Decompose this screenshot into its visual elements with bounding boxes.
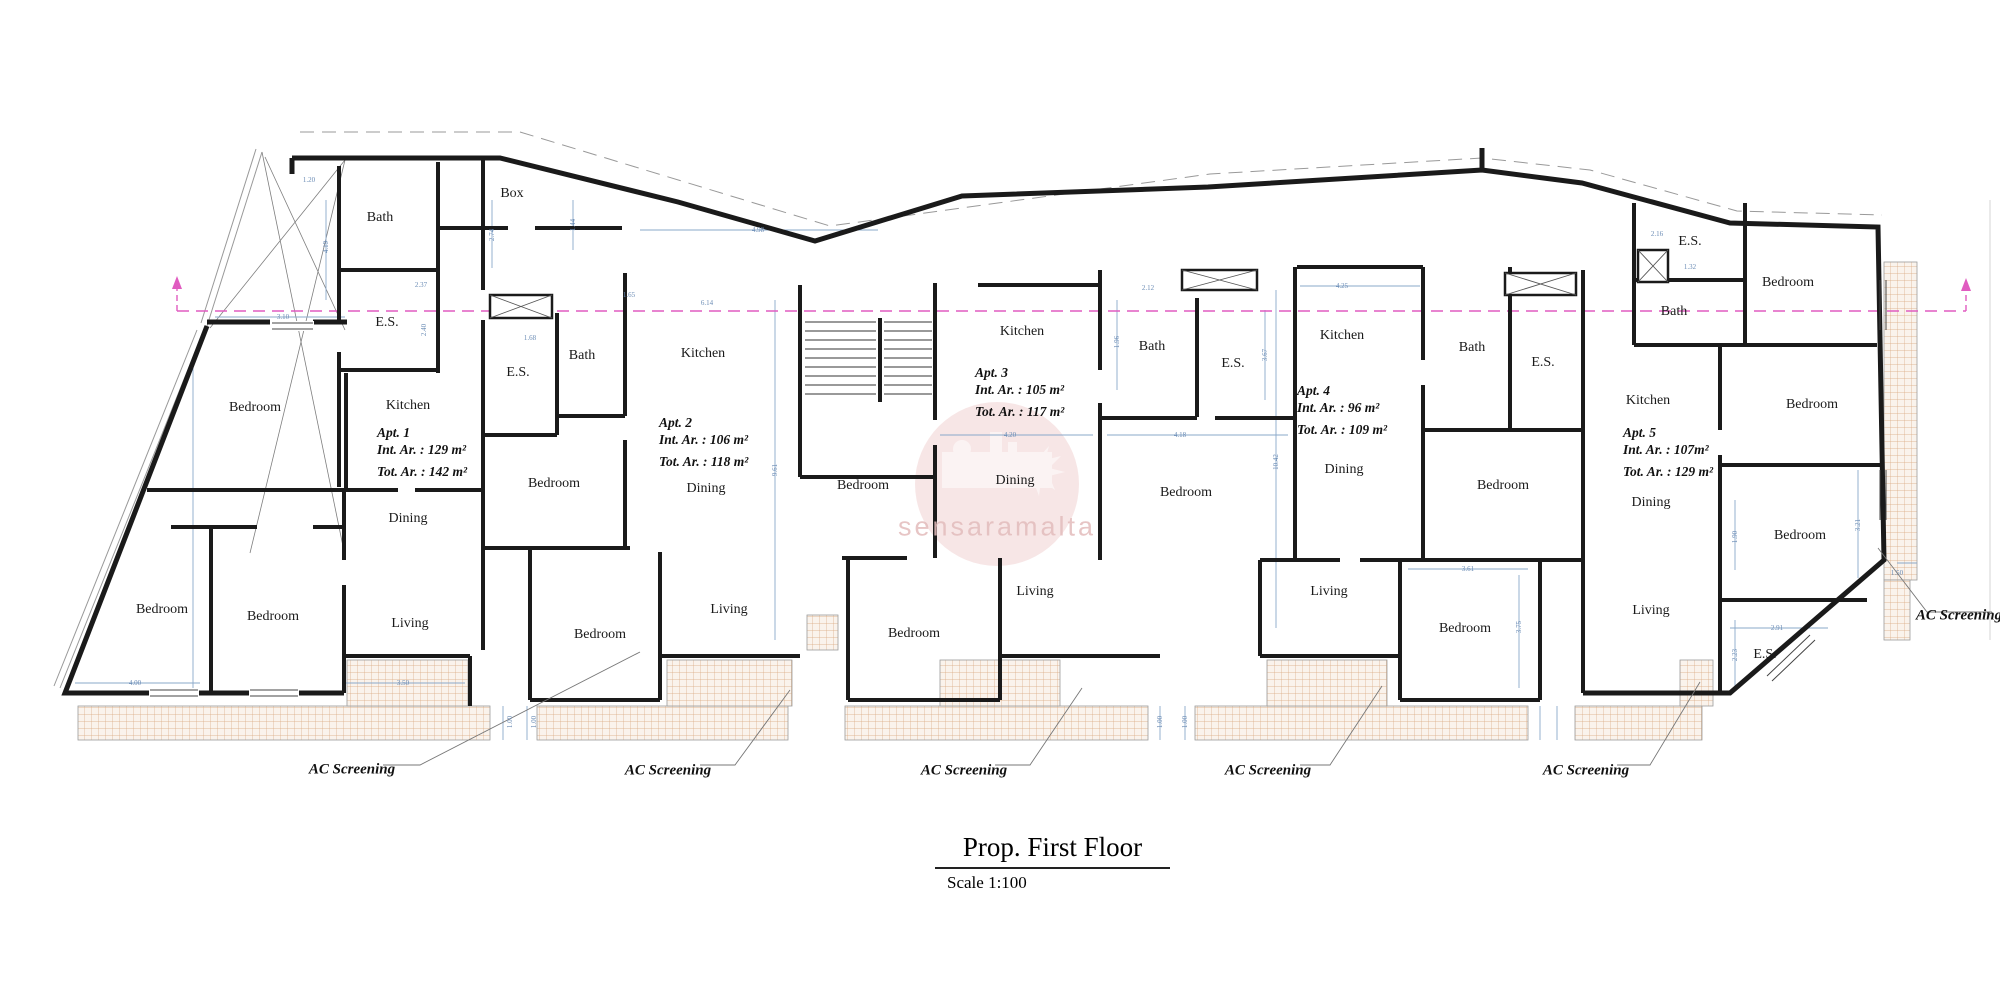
ac-screening-label: AC Screening bbox=[921, 763, 1007, 780]
room-label: Bedroom bbox=[888, 626, 940, 642]
apartment-int-area: Int. Ar. : 96 m² bbox=[1297, 399, 1387, 416]
ac-screening-label: AC Screening bbox=[625, 763, 711, 780]
dimension-label: 2.40 bbox=[420, 324, 428, 336]
room-label: E.S. bbox=[375, 315, 398, 331]
dimension-label: 3.67 bbox=[1261, 349, 1269, 361]
dimension-label: 2.37 bbox=[415, 281, 427, 289]
apartment-name: Apt. 2 bbox=[659, 414, 748, 431]
title-block: Prop. First Floor Scale 1:100 bbox=[935, 832, 1170, 893]
room-label: Kitchen bbox=[1000, 324, 1044, 340]
dimension-label: 1.00 bbox=[1156, 716, 1164, 728]
dimension-label: 4.00 bbox=[129, 679, 141, 687]
dimension-label: 4.18 bbox=[1174, 431, 1186, 439]
dimension-label: 2.91 bbox=[1771, 624, 1783, 632]
dimension-label: 1.00 bbox=[530, 716, 538, 728]
room-label: E.S. bbox=[1531, 355, 1554, 371]
dimension-label: 1.00 bbox=[1181, 716, 1189, 728]
apartment-name: Apt. 3 bbox=[975, 364, 1064, 381]
room-label: E.S. bbox=[1678, 234, 1701, 250]
ac-screening-label: AC Screening bbox=[1916, 608, 2000, 625]
apartment-int-area: Int. Ar. : 107m² bbox=[1623, 441, 1713, 458]
room-label: Bedroom bbox=[1786, 397, 1838, 413]
room-label: Living bbox=[391, 616, 428, 632]
room-label: Bath bbox=[1459, 340, 1485, 356]
room-label: Bath bbox=[1661, 304, 1687, 320]
room-label: Bedroom bbox=[1160, 485, 1212, 501]
room-label: E.S. bbox=[1221, 356, 1244, 372]
dimension-label: 9.61 bbox=[771, 464, 779, 476]
room-label: E.S. bbox=[506, 365, 529, 381]
room-label: Living bbox=[1632, 603, 1669, 619]
room-label: Dining bbox=[1632, 495, 1671, 511]
apartment-name: Apt. 4 bbox=[1297, 382, 1387, 399]
dimension-label: 6.14 bbox=[701, 299, 713, 307]
ac-screening-label: AC Screening bbox=[309, 762, 395, 779]
room-label: Bedroom bbox=[1762, 275, 1814, 291]
room-label: Bath bbox=[367, 210, 393, 226]
room-label: Dining bbox=[1325, 462, 1364, 478]
dimension-label: 1.44 bbox=[569, 219, 577, 231]
apartment-int-area: Int. Ar. : 105 m² bbox=[975, 381, 1064, 398]
room-label: Living bbox=[710, 602, 747, 618]
dimension-label: 1.32 bbox=[1684, 263, 1696, 271]
room-label: Dining bbox=[996, 473, 1035, 489]
dimension-label: 1.68 bbox=[524, 334, 536, 342]
apartment-info: Apt. 3Int. Ar. : 105 m²Tot. Ar. : 117 m² bbox=[975, 364, 1064, 420]
room-label: Bedroom bbox=[229, 400, 281, 416]
apartment-tot-area: Tot. Ar. : 109 m² bbox=[1297, 421, 1387, 438]
apartment-info: Apt. 4Int. Ar. : 96 m²Tot. Ar. : 109 m² bbox=[1297, 382, 1387, 438]
apartment-name: Apt. 1 bbox=[377, 424, 467, 441]
room-label: Living bbox=[1016, 584, 1053, 600]
dimension-label: 1.65 bbox=[623, 291, 635, 299]
room-label: Bedroom bbox=[574, 627, 626, 643]
floor-plan-page: BathBoxE.S.BedroomKitchenDiningBedroomBe… bbox=[0, 0, 2000, 992]
dimension-label: 1.50 bbox=[1891, 569, 1903, 577]
dimension-label: 10.42 bbox=[1272, 454, 1280, 470]
apartment-int-area: Int. Ar. : 106 m² bbox=[659, 431, 748, 448]
dimension-label: 3.21 bbox=[1854, 519, 1862, 531]
dimension-label: 4.98 bbox=[752, 226, 764, 234]
apartment-name: Apt. 5 bbox=[1623, 424, 1713, 441]
watermark-text: sensaramalta bbox=[898, 512, 1096, 543]
dimension-label: 4.25 bbox=[1336, 282, 1348, 290]
dimension-label: 1.96 bbox=[1113, 336, 1121, 348]
room-label: Bedroom bbox=[528, 476, 580, 492]
apartment-info: Apt. 1Int. Ar. : 129 m²Tot. Ar. : 142 m² bbox=[377, 424, 467, 480]
apartment-tot-area: Tot. Ar. : 129 m² bbox=[1623, 463, 1713, 480]
dimension-label: 4.19 bbox=[322, 241, 330, 253]
apartment-tot-area: Tot. Ar. : 142 m² bbox=[377, 463, 467, 480]
ac-screening-label: AC Screening bbox=[1225, 763, 1311, 780]
room-label: Bedroom bbox=[1774, 528, 1826, 544]
room-label: E.S. bbox=[1753, 647, 1776, 663]
room-label: Kitchen bbox=[386, 398, 430, 414]
dimension-label: 4.20 bbox=[1004, 431, 1016, 439]
apartment-info: Apt. 5Int. Ar. : 107m²Tot. Ar. : 129 m² bbox=[1623, 424, 1713, 480]
room-label: Bedroom bbox=[136, 602, 188, 618]
dimension-label: 2.12 bbox=[1142, 284, 1154, 292]
dimension-label: 2.23 bbox=[1731, 649, 1739, 661]
room-label: Dining bbox=[389, 511, 428, 527]
room-label: Living bbox=[1310, 584, 1347, 600]
room-label: Box bbox=[500, 186, 523, 202]
room-label: Bedroom bbox=[1477, 478, 1529, 494]
room-label: Dining bbox=[687, 481, 726, 497]
drawing-title: Prop. First Floor bbox=[935, 832, 1170, 869]
dimension-label: 2.16 bbox=[1651, 230, 1663, 238]
room-label: Bedroom bbox=[1439, 621, 1491, 637]
ac-screening-label: AC Screening bbox=[1543, 763, 1629, 780]
dimension-label: 1.20 bbox=[303, 176, 315, 184]
dimension-label: 1.00 bbox=[506, 716, 514, 728]
room-label: Kitchen bbox=[681, 346, 725, 362]
dimension-label: 2.74 bbox=[488, 229, 496, 241]
room-label: Bath bbox=[569, 348, 595, 364]
dimension-label: 3.50 bbox=[397, 679, 409, 687]
room-label: Kitchen bbox=[1320, 328, 1364, 344]
dimension-label: 3.61 bbox=[1462, 565, 1474, 573]
dimension-label: 3.75 bbox=[1515, 621, 1523, 633]
dimension-label: 1.90 bbox=[1731, 531, 1739, 543]
room-label: Kitchen bbox=[1626, 393, 1670, 409]
apartment-tot-area: Tot. Ar. : 117 m² bbox=[975, 403, 1064, 420]
room-label: Bedroom bbox=[837, 478, 889, 494]
apartment-int-area: Int. Ar. : 129 m² bbox=[377, 441, 467, 458]
apartment-info: Apt. 2Int. Ar. : 106 m²Tot. Ar. : 118 m² bbox=[659, 414, 748, 470]
drawing-scale: Scale 1:100 bbox=[935, 873, 1170, 893]
room-label: Bath bbox=[1139, 339, 1165, 355]
dimension-label: 3.10 bbox=[277, 313, 289, 321]
room-label: Bedroom bbox=[247, 609, 299, 625]
apartment-tot-area: Tot. Ar. : 118 m² bbox=[659, 453, 748, 470]
